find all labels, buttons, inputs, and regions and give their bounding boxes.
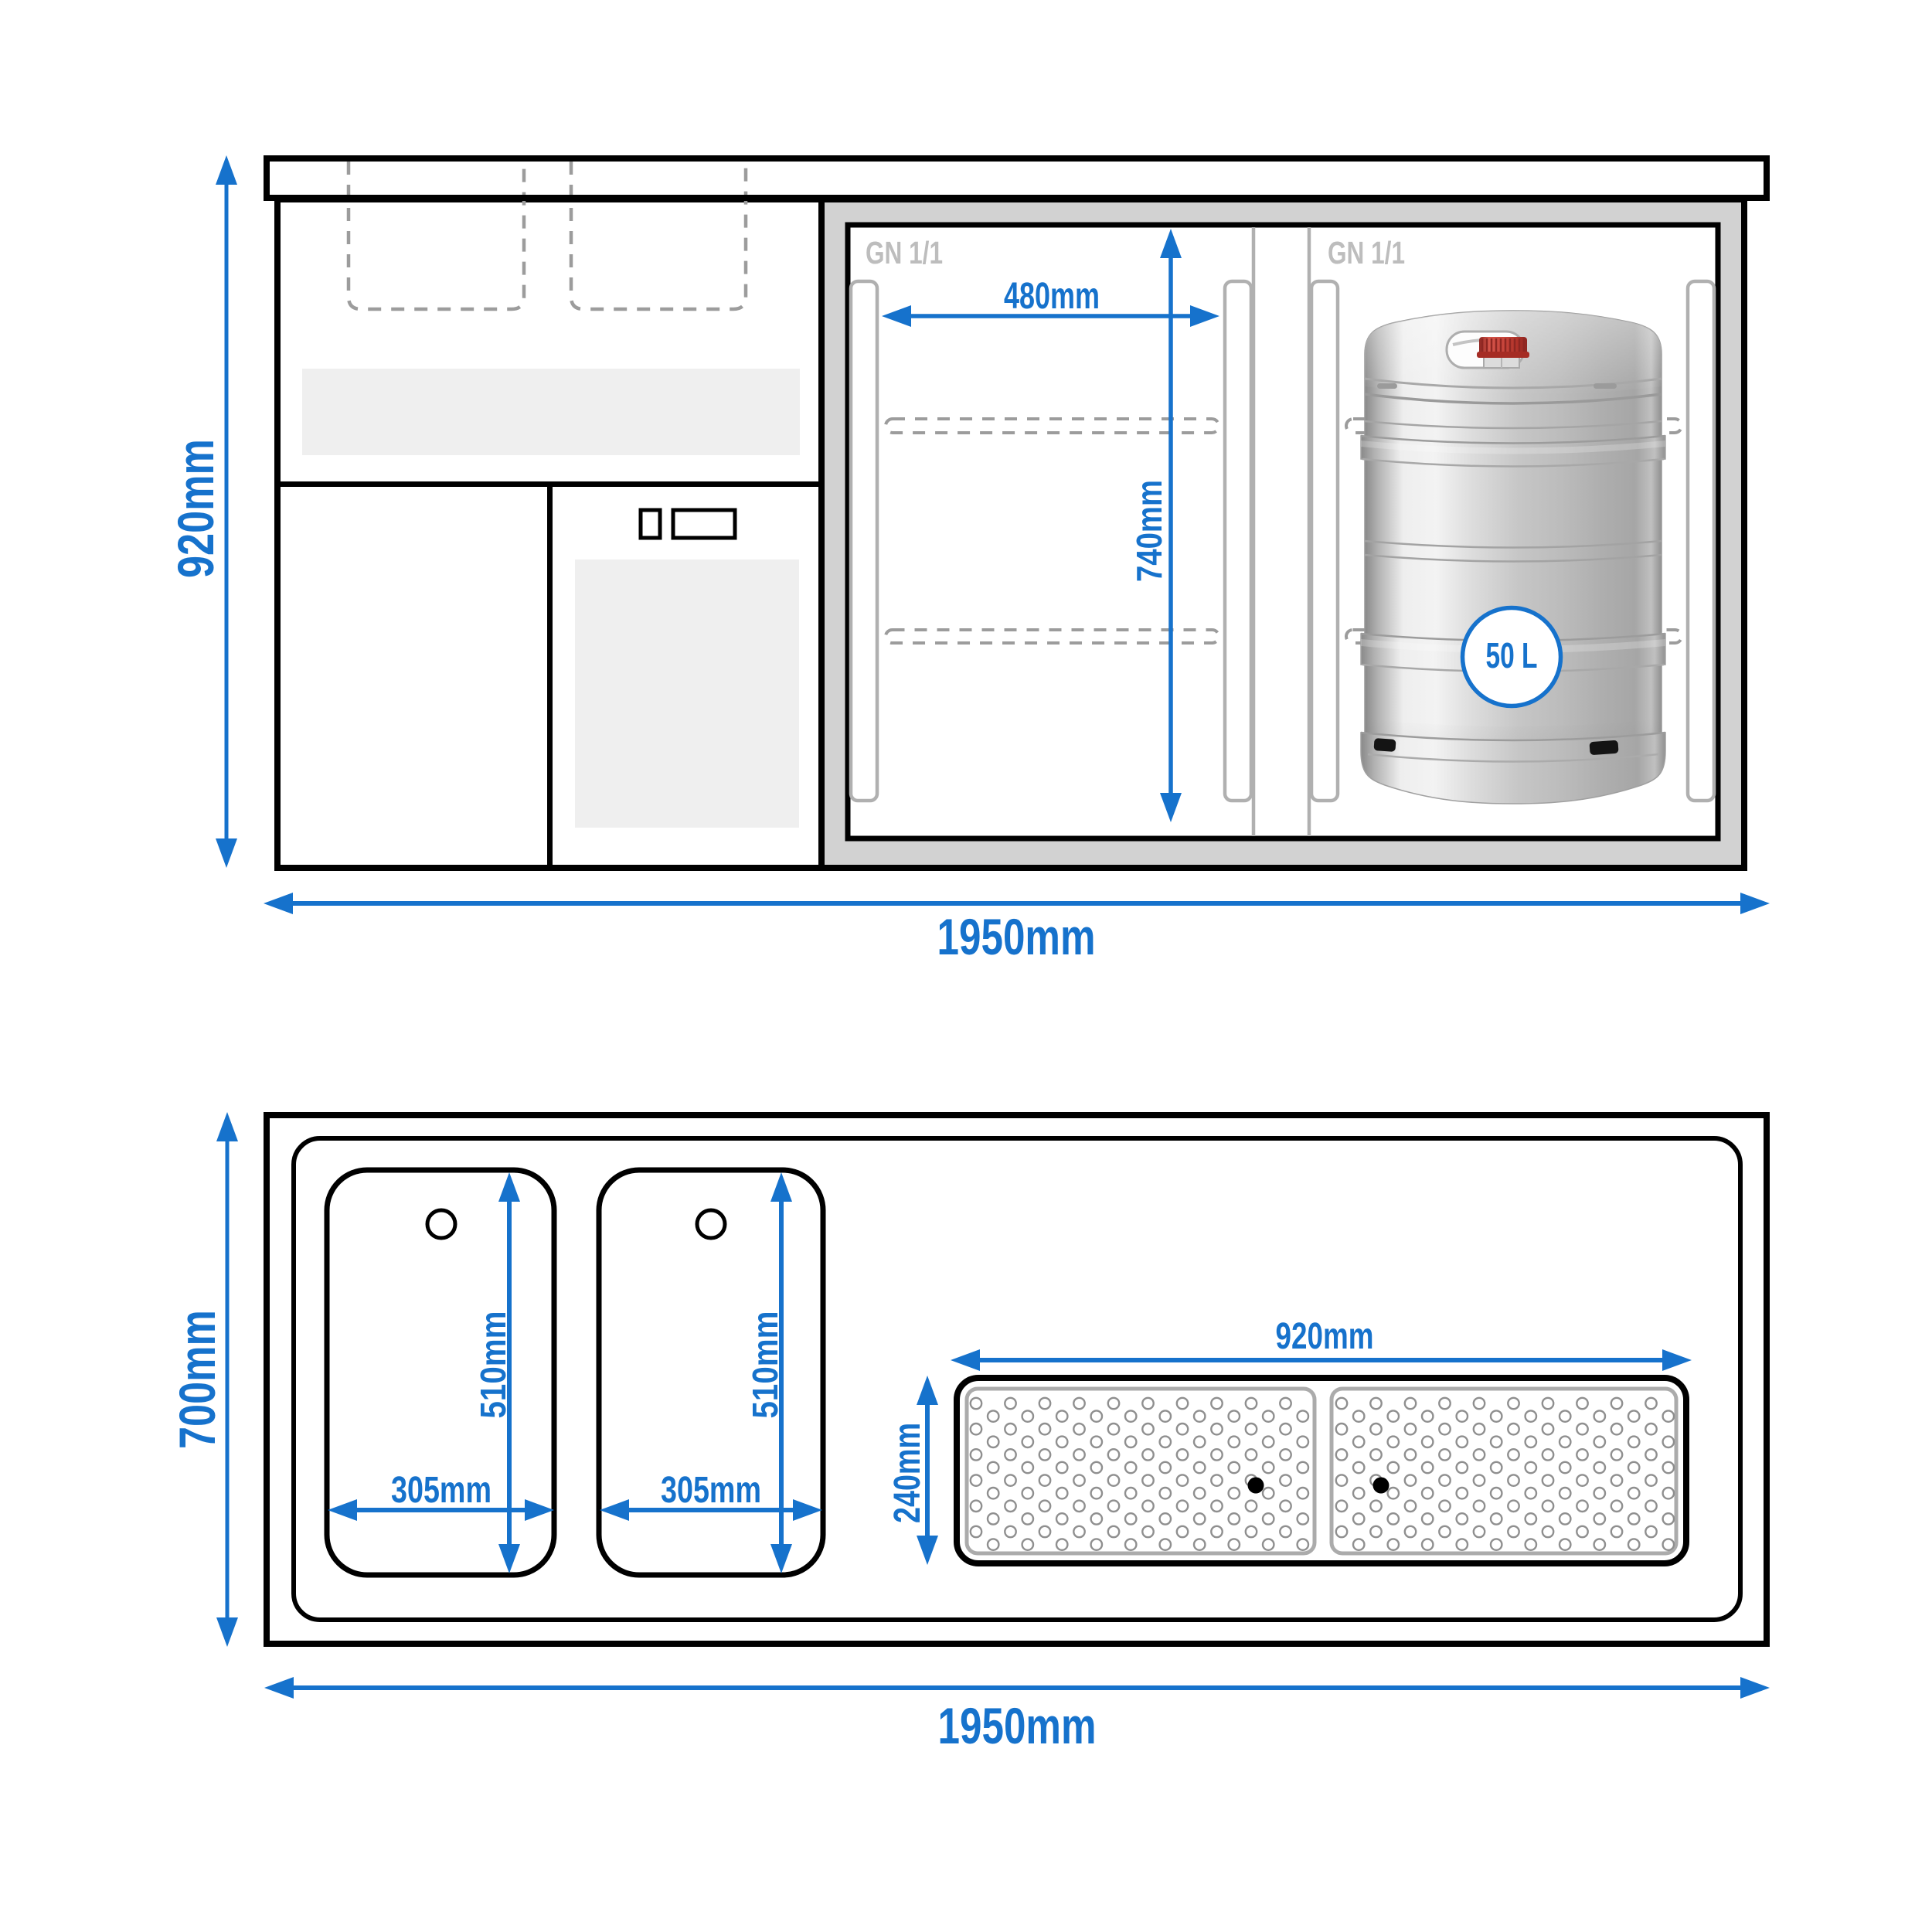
- svg-text:700mm: 700mm: [168, 1310, 226, 1449]
- svg-text:920mm: 920mm: [1276, 1316, 1374, 1357]
- svg-text:1950mm: 1950mm: [938, 1697, 1097, 1754]
- svg-text:305mm: 305mm: [661, 1470, 761, 1511]
- svg-text:50 L: 50 L: [1486, 635, 1538, 675]
- svg-text:1950mm: 1950mm: [937, 908, 1096, 965]
- svg-text:240mm: 240mm: [887, 1423, 928, 1523]
- svg-text:920mm: 920mm: [167, 439, 224, 578]
- svg-text:510mm: 510mm: [745, 1311, 785, 1419]
- svg-text:GN 1/1: GN 1/1: [866, 235, 943, 270]
- svg-text:510mm: 510mm: [473, 1311, 513, 1419]
- svg-text:480mm: 480mm: [1004, 276, 1100, 317]
- svg-text:GN 1/1: GN 1/1: [1328, 235, 1405, 270]
- svg-text:740mm: 740mm: [1129, 480, 1169, 582]
- svg-text:305mm: 305mm: [391, 1470, 492, 1511]
